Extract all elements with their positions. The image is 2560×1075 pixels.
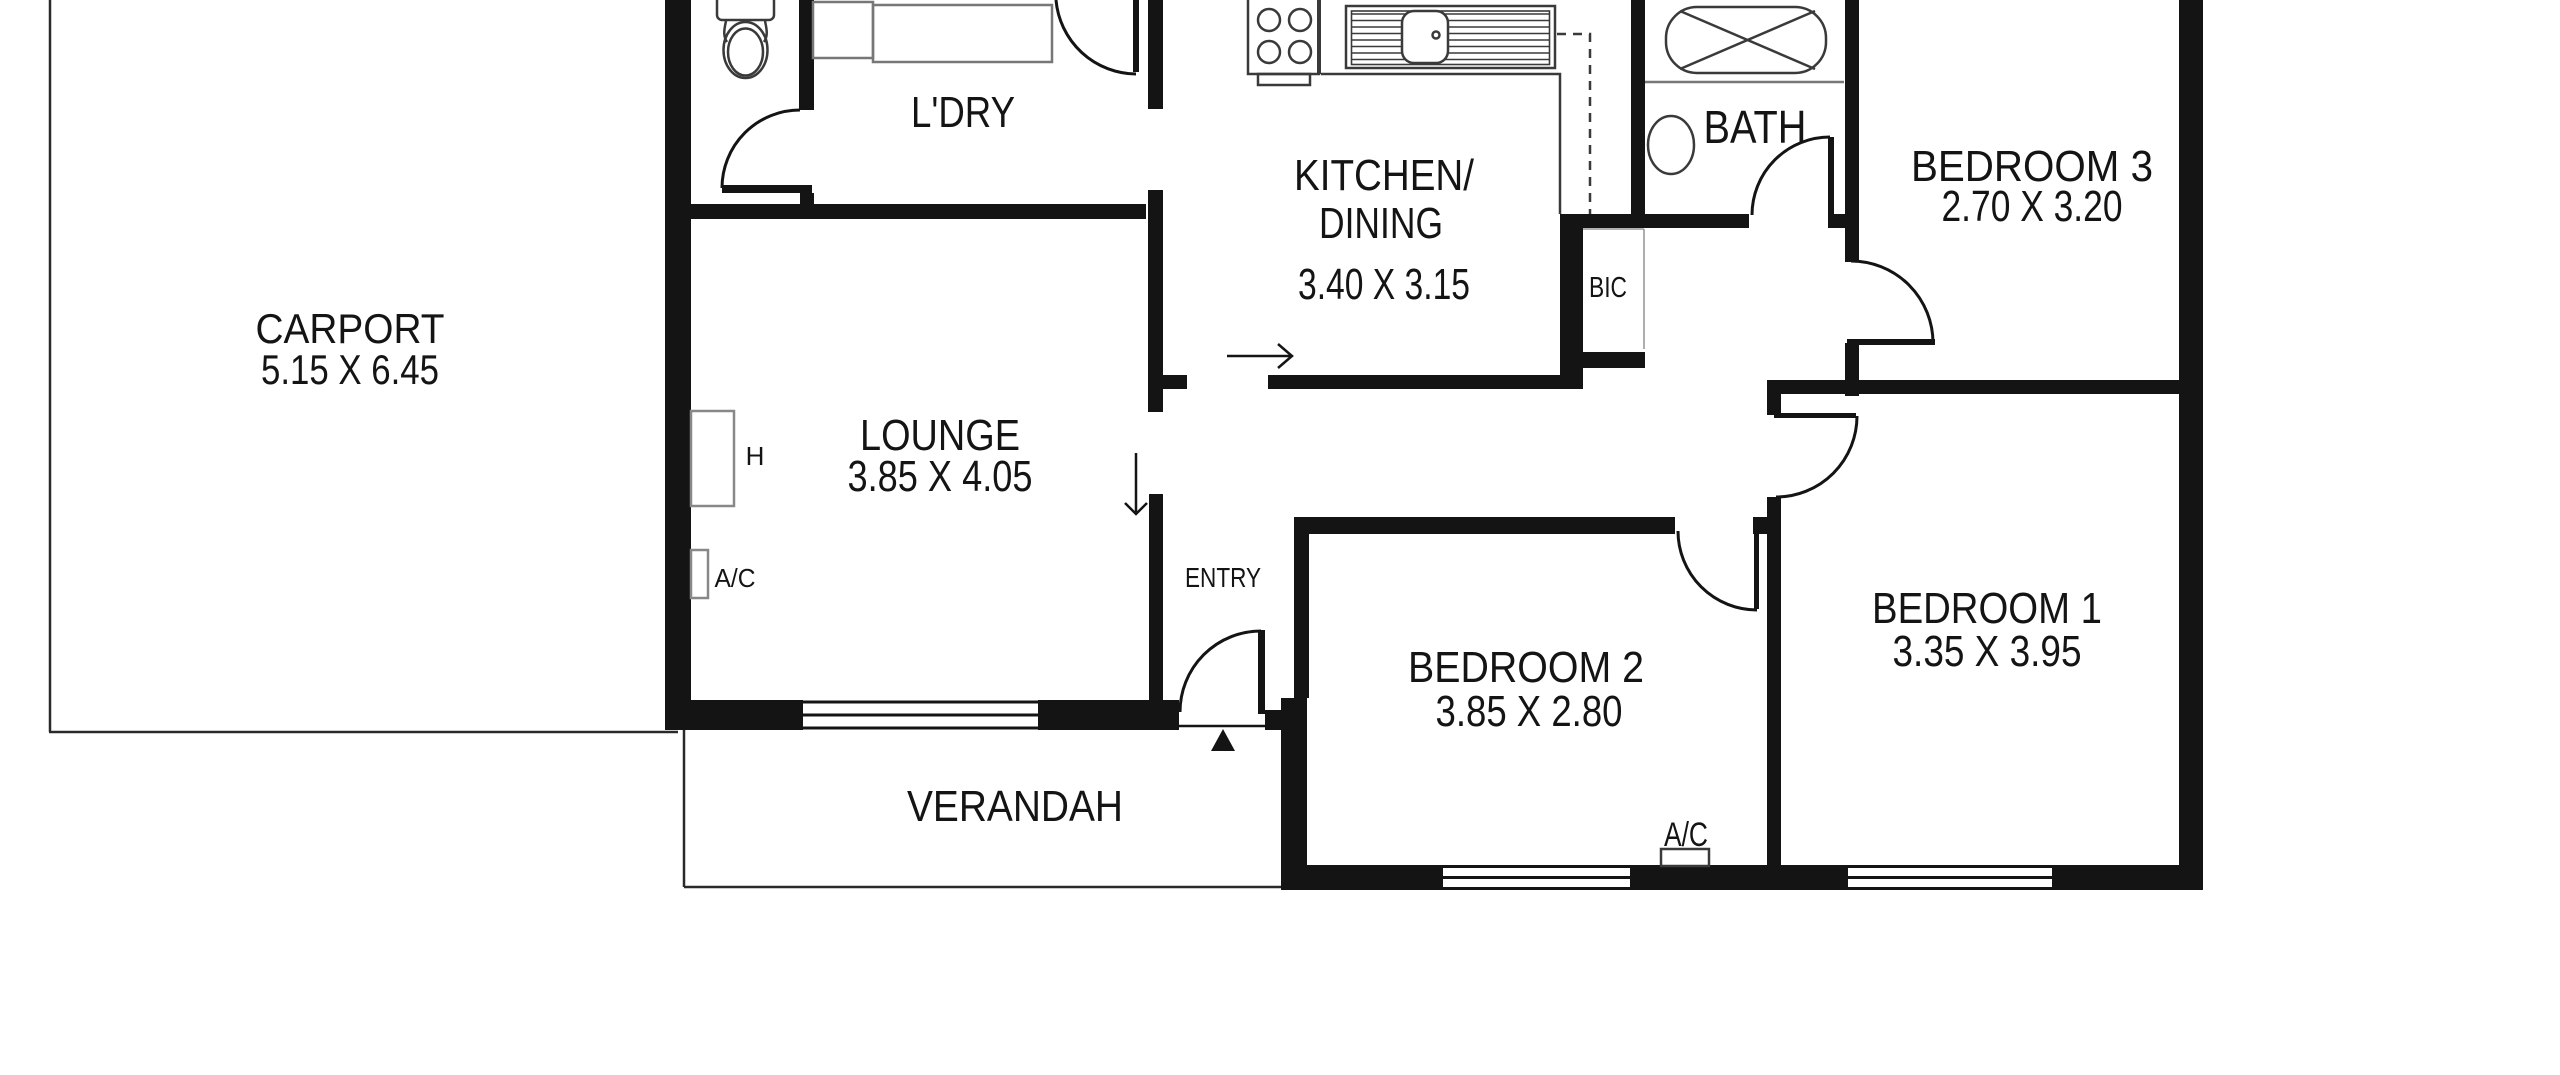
svg-text:BEDROOM 1: BEDROOM 1: [1872, 584, 2102, 633]
svg-text:ENTRY: ENTRY: [1185, 562, 1261, 593]
svg-text:BIC: BIC: [1589, 272, 1627, 304]
svg-text:2.70 X 3.20: 2.70 X 3.20: [1942, 182, 2123, 231]
svg-text:A/C: A/C: [1664, 816, 1708, 854]
svg-text:3.40 X 3.15: 3.40 X 3.15: [1298, 260, 1470, 309]
svg-text:DINING: DINING: [1319, 199, 1443, 248]
svg-text:VERANDAH: VERANDAH: [907, 782, 1123, 831]
svg-text:L'DRY: L'DRY: [911, 88, 1015, 137]
svg-text:CARPORT: CARPORT: [256, 305, 445, 352]
svg-text:3.85 X 2.80: 3.85 X 2.80: [1436, 687, 1623, 736]
svg-text:BEDROOM 2: BEDROOM 2: [1408, 643, 1644, 692]
svg-text:A/C: A/C: [715, 563, 756, 593]
svg-text:KITCHEN/: KITCHEN/: [1294, 151, 1475, 200]
svg-text:H: H: [746, 441, 765, 471]
svg-text:5.15 X 6.45: 5.15 X 6.45: [261, 346, 439, 393]
svg-text:BATH: BATH: [1704, 101, 1807, 153]
svg-text:3.35 X 3.95: 3.35 X 3.95: [1893, 627, 2082, 676]
svg-text:3.85 X 4.05: 3.85 X 4.05: [848, 452, 1033, 501]
